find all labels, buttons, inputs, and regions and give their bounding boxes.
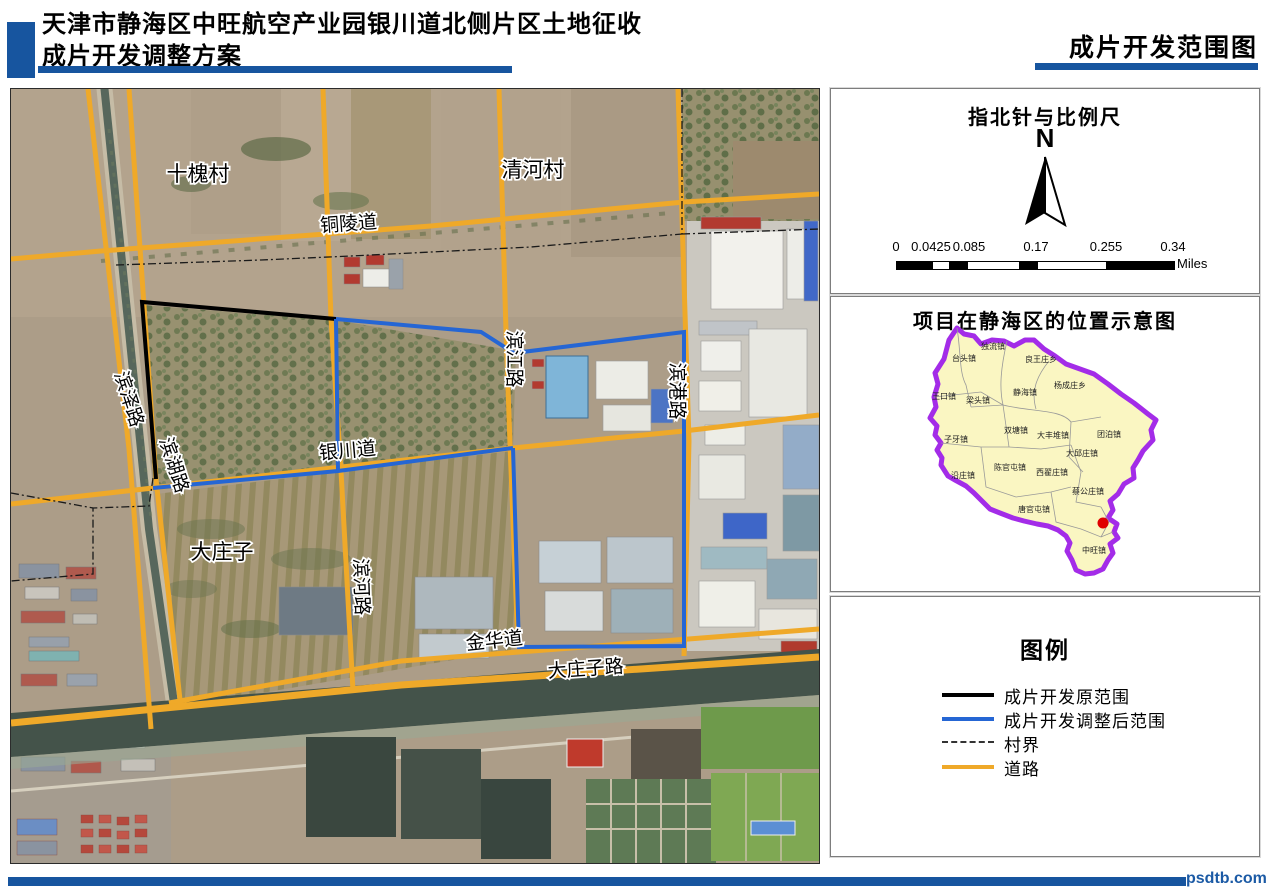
north-arrow: N <box>1015 125 1075 236</box>
legend-panel: 图例 成片开发原范围 成片开发调整后范围 村界 道路 <box>830 596 1260 857</box>
scale-tick-3: 0.17 <box>1023 239 1048 254</box>
header-logo-block <box>7 22 35 78</box>
scale-tick-0: 0 <box>892 239 899 254</box>
legend-label: 成片开发调整后范围 <box>1004 707 1166 732</box>
north-arrow-icon <box>1015 151 1075 231</box>
scale-tick-4: 0.255 <box>1090 239 1123 254</box>
town-label: 团泊镇 <box>1097 429 1121 439</box>
satellite-map: 十槐村 清河村 铜陵道 滨江路 滨港路 滨泽路 滨湖路 银川道 大庄子 滨河路 … <box>10 88 820 864</box>
scale-tick-1: 0.0425 <box>911 239 951 254</box>
legend-line-village-boundary <box>942 741 994 743</box>
scale-tick-5: 0.34 <box>1160 239 1185 254</box>
page-title-line1: 天津市静海区中旺航空产业园银川道北侧片区土地征收 <box>42 4 642 39</box>
village-label-shihuaicun: 十槐村 <box>167 162 230 186</box>
watermark: psdtb.com <box>1186 870 1267 888</box>
village-label-dazhuangzi: 大庄子 <box>191 540 254 564</box>
village-red-roofs <box>17 815 147 855</box>
district-shape <box>930 328 1156 574</box>
town-label: 唐官屯镇 <box>1018 504 1050 514</box>
map-sheet-title-underline <box>1035 63 1258 70</box>
town-label: 蔡公庄镇 <box>1072 486 1104 496</box>
district-locator-map: 独流镇 台头镇 良王庄乡 杨成庄乡 王口镇 梁头镇 静海镇 双塘镇 大丰堆镇 团… <box>831 297 1259 591</box>
legend-label: 村界 <box>1004 731 1040 756</box>
legend-label: 成片开发原范围 <box>1004 683 1130 708</box>
road-label-binganglu: 滨港路 <box>666 362 688 419</box>
legend-title: 图例 <box>831 631 1259 665</box>
town-label: 杨成庄乡 <box>1054 380 1086 390</box>
legend-line-road <box>942 765 994 769</box>
legend-line-adjusted-scope <box>942 717 994 721</box>
project-location-marker <box>1098 518 1109 529</box>
road-label-binhelu: 滨河路 <box>349 558 373 616</box>
town-label: 静海镇 <box>1013 387 1037 397</box>
town-label: 西翟庄镇 <box>1036 467 1068 477</box>
village-label-qinghecun: 清河村 <box>502 158 565 182</box>
north-label: N <box>1015 125 1075 151</box>
town-label: 大邱庄镇 <box>1066 448 1098 458</box>
scale-bar <box>896 261 1175 270</box>
title-underline-bar <box>38 66 512 73</box>
town-label: 沿庄镇 <box>951 470 975 480</box>
town-label: 中旺镇 <box>1082 545 1106 555</box>
footer-bar <box>8 877 1186 886</box>
town-label: 梁头镇 <box>966 395 990 405</box>
town-label: 王口镇 <box>932 391 956 401</box>
compass-scale-panel: 指北针与比例尺 N 0 0.0425 0.085 0.17 0.255 0.34… <box>830 88 1260 294</box>
scale-unit-label: Miles <box>1177 256 1207 271</box>
scale-tick-2: 0.085 <box>953 239 986 254</box>
town-label: 陈官屯镇 <box>994 462 1026 472</box>
town-label: 子牙镇 <box>944 434 968 444</box>
location-panel: 项目在静海区的位置示意图 独流镇 台头镇 良王庄乡 杨成庄乡 王口镇 梁 <box>830 296 1260 592</box>
road-label-tonglingdao: 铜陵道 <box>319 211 377 237</box>
town-label: 大丰堆镇 <box>1037 430 1069 440</box>
town-label: 独流镇 <box>981 341 1005 351</box>
legend-line-original-scope <box>942 693 994 697</box>
legend-label: 道路 <box>1004 755 1040 780</box>
town-label: 良王庄乡 <box>1025 354 1057 364</box>
town-label: 双塘镇 <box>1004 425 1028 435</box>
pond-and-factories <box>546 356 588 418</box>
map-sheet-title: 成片开发范围图 <box>958 28 1258 64</box>
town-label: 台头镇 <box>952 353 976 363</box>
satellite-map-canvas: 十槐村 清河村 铜陵道 滨江路 滨港路 滨泽路 滨湖路 银川道 大庄子 滨河路 … <box>11 89 819 863</box>
road-label-binjianglu: 滨江路 <box>503 330 525 387</box>
